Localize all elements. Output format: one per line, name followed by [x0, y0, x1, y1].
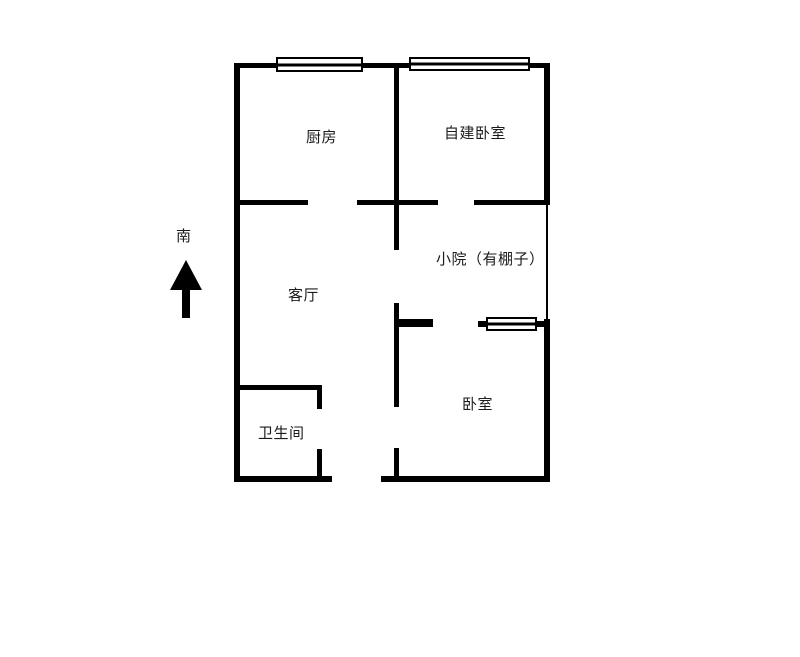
wall-bathroom-top — [237, 385, 322, 390]
self-built-bedroom-window-bar — [409, 63, 530, 66]
wall-mid-horizontal-c — [474, 200, 550, 205]
bedroom-label: 卧室 — [462, 397, 493, 413]
wall-mid-horizontal-a — [234, 200, 308, 205]
bathroom-label: 卫生间 — [258, 426, 305, 442]
wall-central-upper — [394, 63, 399, 250]
wall-bedroom-window-right-stub — [535, 321, 550, 327]
wall-right-lower — [544, 319, 550, 482]
wall-right-upper — [544, 63, 550, 205]
kitchen-label: 厨房 — [306, 130, 337, 146]
wall-central-lower — [394, 448, 399, 482]
wall-bedroom-top-stub — [397, 319, 433, 327]
wall-bottom-right — [381, 476, 550, 482]
wall-left — [234, 63, 240, 482]
kitchen-window — [276, 57, 363, 72]
bedroom-window-bar — [486, 323, 537, 326]
floor-plan: 南 厨房 自建卧室 客厅 小院（有棚子） 卧室 卫生间 — [0, 0, 800, 657]
wall-bathroom-right-lower — [317, 449, 322, 480]
compass-south-label: 南 — [176, 229, 191, 245]
wall-bathroom-right-upper — [317, 385, 322, 409]
self-built-bedroom-label: 自建卧室 — [444, 126, 506, 142]
yard-label: 小院（有棚子） — [436, 252, 545, 268]
wall-right-yard — [546, 205, 548, 319]
south-arrow-icon — [169, 260, 203, 318]
bedroom-window — [486, 317, 537, 331]
living-room-label: 客厅 — [288, 288, 319, 304]
self-built-bedroom-window — [409, 57, 530, 71]
kitchen-window-bar — [276, 63, 363, 66]
